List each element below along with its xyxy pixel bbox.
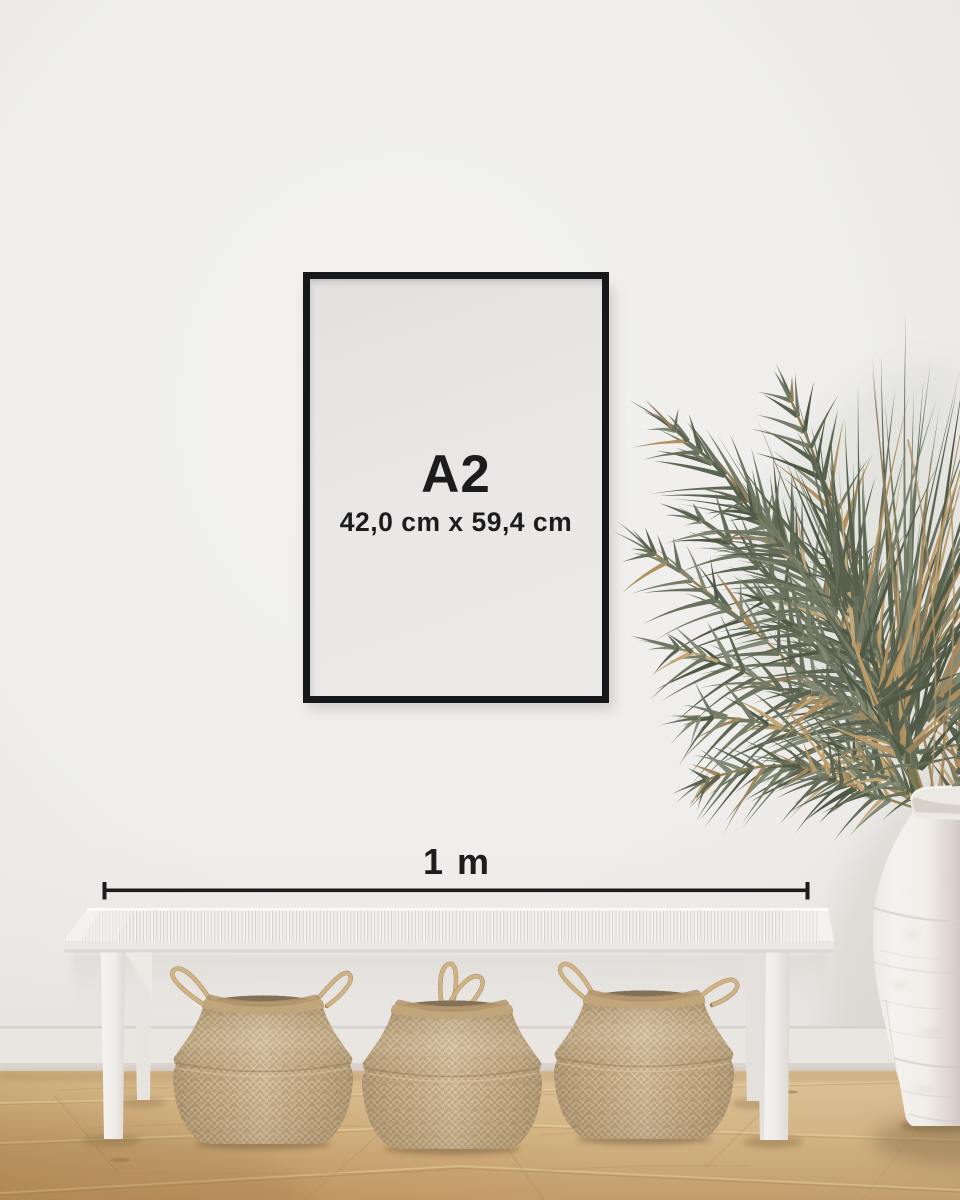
svg-text:A2: A2 — [421, 445, 491, 504]
svg-text:42,0 cm x 59,4 cm: 42,0 cm x 59,4 cm — [340, 507, 572, 537]
svg-text:1 m: 1 m — [423, 841, 491, 882]
